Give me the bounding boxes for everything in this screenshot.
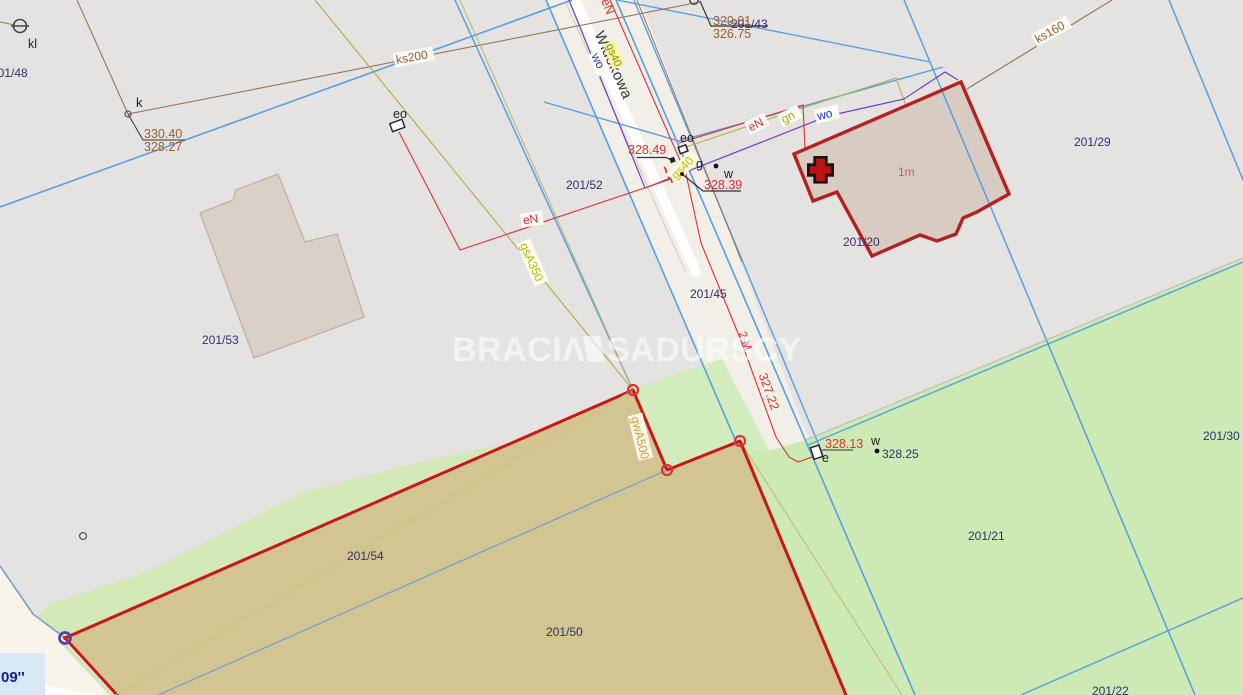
svg-text:k: k xyxy=(136,95,143,110)
svg-text:eN: eN xyxy=(522,211,539,227)
svg-text:BRACIΛ: BRACIΛ xyxy=(452,331,585,369)
svg-text:201/30: 201/30 xyxy=(1203,429,1240,443)
svg-text:SADURSCY: SADURSCY xyxy=(607,331,802,369)
svg-text:201/20: 201/20 xyxy=(843,235,880,249)
svg-text:201/54: 201/54 xyxy=(347,549,384,563)
svg-text:326.75: 326.75 xyxy=(713,27,751,41)
svg-text:201/29: 201/29 xyxy=(1074,135,1111,149)
svg-text:201/48: 201/48 xyxy=(0,66,28,80)
svg-text:w: w xyxy=(870,434,881,448)
svg-text:328.39: 328.39 xyxy=(704,178,742,192)
svg-text:eo: eo xyxy=(393,107,407,121)
svg-text:eo: eo xyxy=(680,131,694,145)
svg-text:329.01: 329.01 xyxy=(713,14,751,28)
svg-text:g: g xyxy=(696,157,703,171)
svg-text:201/45: 201/45 xyxy=(690,287,727,301)
svg-text:1m: 1m xyxy=(898,165,915,179)
svg-text:201/50: 201/50 xyxy=(546,625,583,639)
svg-text:201/22: 201/22 xyxy=(1092,684,1129,695)
svg-text:328.25: 328.25 xyxy=(882,447,919,461)
svg-text:201/53: 201/53 xyxy=(202,333,239,347)
svg-text:kl: kl xyxy=(28,37,37,51)
svg-text:201/52: 201/52 xyxy=(566,178,603,192)
svg-text:328.27: 328.27 xyxy=(144,140,182,154)
svg-text:09'': 09'' xyxy=(1,669,25,686)
svg-text:330.40: 330.40 xyxy=(144,127,182,141)
svg-text:328.13: 328.13 xyxy=(825,437,863,451)
svg-text:328.49: 328.49 xyxy=(628,143,666,157)
svg-text:e: e xyxy=(822,451,829,465)
svg-text:201/21: 201/21 xyxy=(968,529,1005,543)
